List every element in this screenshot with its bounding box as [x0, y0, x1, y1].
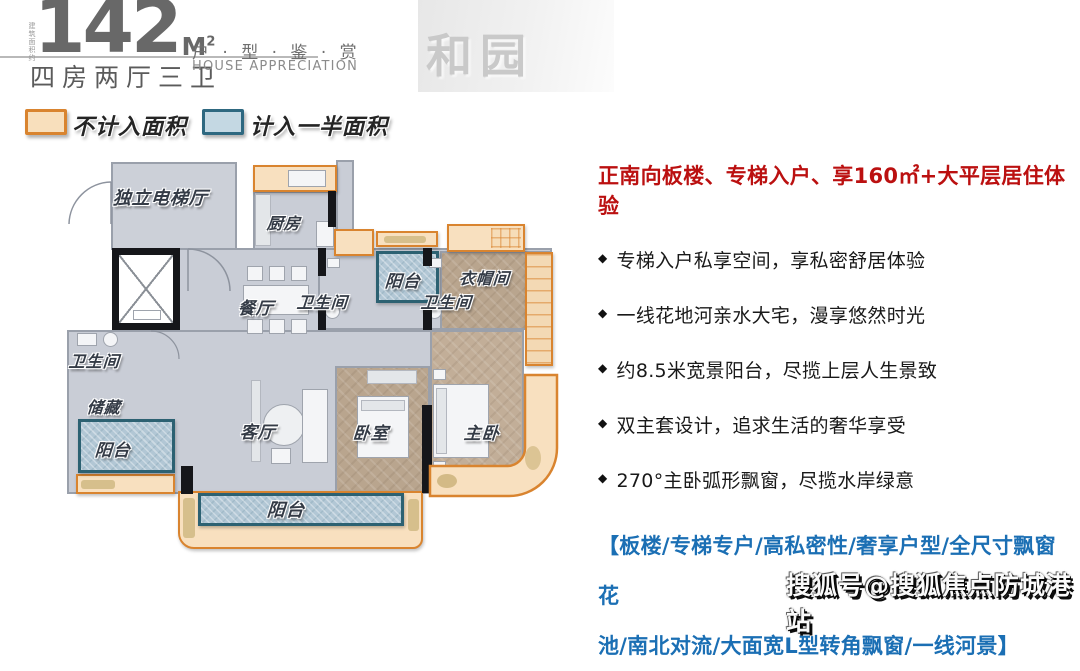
area-figure: 142 M2	[34, 0, 215, 64]
diamond-icon: ◆	[598, 416, 608, 430]
door-arc-bath	[151, 331, 179, 359]
room-label-balcony-bottom: 阳台	[266, 496, 306, 522]
feature-bullet: ◆ 专梯入户私享空间，享私密舒居体验	[598, 246, 1074, 273]
room-label-bedroom: 卧室	[352, 419, 390, 444]
legend-swatch-half-counted	[202, 109, 244, 135]
room-label-kitchen: 厨房	[266, 210, 302, 234]
legend-swatch-not-counted	[25, 109, 67, 135]
room-label-bath-right: 卫生间	[420, 289, 473, 313]
headline: 正南向板楼、专梯入户、享160㎡+大平层居住体验	[598, 160, 1074, 220]
feature-text: 专梯入户私享空间，享私密舒居体验	[617, 246, 926, 273]
room-label-dining: 餐厅	[237, 294, 275, 319]
room-label-cloakroom: 衣帽间	[458, 265, 511, 289]
feature-bullet: ◆ 约8.5米宽景阳台，尽揽上层人生景致	[598, 356, 1074, 383]
area-value: 142	[34, 0, 179, 64]
diamond-icon: ◆	[598, 361, 608, 375]
room-label-bath-center: 卫生间	[296, 289, 349, 313]
brand-watermark: 和园	[418, 0, 614, 86]
feature-bullet: ◆ 270°主卧弧形飘窗，尽揽水岸绿意	[598, 466, 1074, 493]
feature-bullet: ◆ 一线花地河亲水大宅，漫享悠然时光	[598, 301, 1074, 328]
plan-overlay-svg	[55, 148, 595, 584]
door-arc-hall	[188, 249, 230, 291]
room-label-master: 主卧	[463, 419, 501, 444]
feature-bullet: ◆ 双主套设计，追求生活的奢华享受	[598, 411, 1074, 438]
feature-text: 270°主卧弧形飘窗，尽揽水岸绿意	[617, 466, 915, 493]
legend-label-not-counted: 不计入面积	[72, 109, 187, 141]
feature-text: 双主套设计，追求生活的奢华享受	[617, 411, 907, 438]
room-label-balcony-center: 阳台	[384, 267, 422, 292]
diamond-icon: ◆	[598, 251, 608, 265]
diamond-icon: ◆	[598, 306, 608, 320]
room-label-storage: 储藏	[86, 394, 122, 418]
door-arc-entrance	[69, 182, 111, 224]
floor-plan: 独立电梯厅 厨房 餐厅 卫生间 储藏 阳台 卫生间 阳台 卫生间 衣帽间 客厅 …	[55, 148, 595, 584]
sohu-watermark: 搜狐号@搜狐焦点防城港站	[786, 566, 1080, 638]
brand-watermark-box: 和园	[418, 0, 614, 92]
feature-text: 约8.5米宽景阳台，尽揽上层人生景致	[617, 356, 938, 383]
room-label-living: 客厅	[239, 418, 277, 443]
room-label-balcony-left: 阳台	[94, 436, 132, 461]
series-subtitle: HOUSE APPRECIATION	[192, 59, 358, 74]
room-label-bath-left: 卫生间	[68, 348, 121, 372]
feature-text: 一线花地河亲水大宅，漫享悠然时光	[617, 301, 926, 328]
legend-label-half-counted: 计入一半面积	[250, 109, 388, 141]
diamond-icon: ◆	[598, 471, 608, 485]
room-label-elevator-hall: 独立电梯厅	[112, 184, 209, 210]
